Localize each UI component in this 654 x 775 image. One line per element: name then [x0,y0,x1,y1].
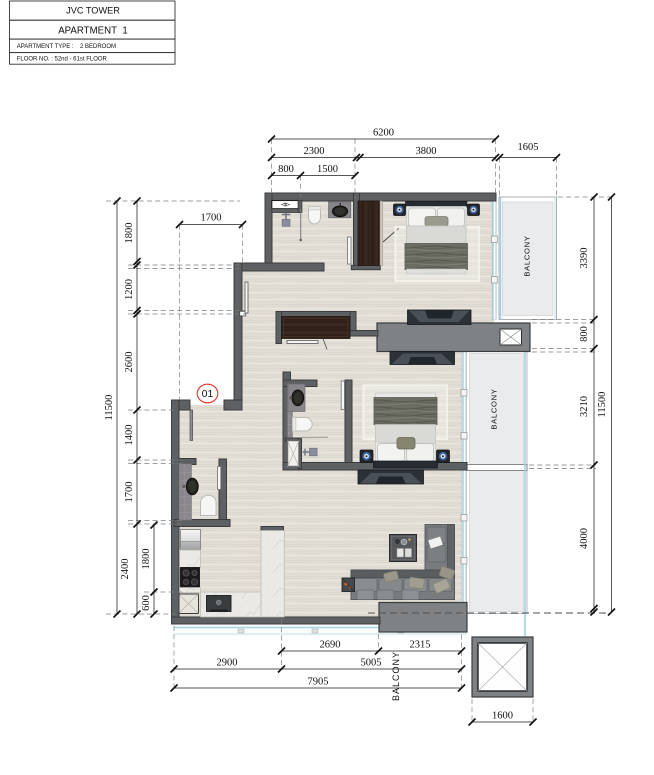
svg-text:6200: 6200 [373,128,394,139]
svg-text:JVC TOWER: JVC TOWER [66,5,120,15]
svg-text:BALCONY: BALCONY [490,388,499,429]
svg-text:3390: 3390 [579,248,590,269]
svg-text:2 BEDROOM: 2 BEDROOM [80,44,116,50]
svg-text:800: 800 [278,164,294,175]
svg-text:52nd - 61st FLOOR: 52nd - 61st FLOOR [55,57,108,63]
svg-text:BALCONY: BALCONY [391,651,401,701]
svg-text:800: 800 [579,326,590,342]
svg-text:1500: 1500 [317,164,338,175]
svg-text:2600: 2600 [124,352,135,373]
svg-text:11500: 11500 [104,395,115,421]
svg-text:3800: 3800 [416,146,437,157]
svg-text:2690: 2690 [320,640,341,651]
svg-text:3210: 3210 [579,396,590,417]
svg-text:BALCONY: BALCONY [523,235,532,276]
svg-text:1400: 1400 [124,425,135,446]
svg-text:1605: 1605 [518,142,539,153]
svg-text:01: 01 [202,388,214,400]
svg-text:FLOOR NO. :: FLOOR NO. : [17,57,54,63]
svg-text:1700: 1700 [201,213,222,224]
svg-text:2400: 2400 [120,559,131,580]
svg-text:1200: 1200 [124,279,135,300]
svg-text:7905: 7905 [308,677,329,688]
svg-text:1600: 1600 [492,711,513,722]
svg-text:2900: 2900 [217,658,238,669]
svg-text:1700: 1700 [124,482,135,503]
svg-text:4000: 4000 [579,528,590,549]
svg-text:APARTMENT 1: APARTMENT 1 [58,26,128,37]
svg-text:1800: 1800 [124,223,135,244]
svg-text:APARTMENT TYPE :: APARTMENT TYPE : [17,44,74,50]
svg-text:11500: 11500 [597,392,608,418]
svg-text:2315: 2315 [410,640,431,651]
svg-text:2300: 2300 [304,146,325,157]
svg-text:5005: 5005 [361,658,382,669]
svg-text:1800: 1800 [141,549,152,570]
svg-text:600: 600 [141,595,152,611]
